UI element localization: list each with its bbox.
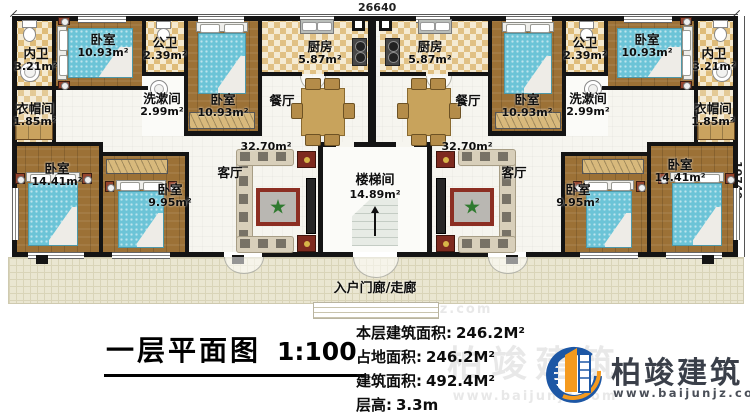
chair	[411, 78, 427, 90]
company-logo: 柏竣建筑 www.baijunjz.com	[541, 340, 746, 412]
stat-land-area: 占地面积:246.2M²	[356, 345, 525, 369]
corner-table	[297, 151, 316, 168]
sofa	[236, 236, 294, 253]
kitchen-sink-symbol	[300, 19, 334, 34]
dimension-width: 26640	[355, 1, 399, 14]
room-label-bath-public-right: 公卫 2.39m²	[560, 36, 610, 62]
room-label-dining-right: 餐厅	[448, 94, 488, 108]
window	[78, 16, 126, 23]
wall	[562, 72, 608, 76]
room-label-bedroom1-right: 卧室 10.93m²	[604, 33, 690, 59]
wall-stairwell-left	[318, 142, 323, 257]
wall	[142, 72, 188, 76]
wall	[324, 72, 370, 76]
wall	[647, 142, 738, 146]
wall	[12, 142, 103, 146]
stairs-direction-arrow	[374, 208, 376, 236]
sofa	[458, 236, 516, 253]
dimension-line-top	[12, 14, 738, 15]
wall	[262, 72, 302, 76]
room-label-bedroom2-left: 卧室 10.93m²	[186, 93, 260, 119]
room-label-bath-private-right: 内卫 3.21m²	[690, 47, 738, 73]
room-label-bath-public-left: 公卫 2.39m²	[140, 36, 190, 62]
room-label-cloak-right: 衣帽间 1.85m²	[686, 102, 740, 128]
bed-symbol	[196, 22, 248, 96]
window	[12, 188, 19, 240]
room-label-bath-private-left: 内卫 3.21m²	[12, 47, 60, 73]
wall	[561, 152, 651, 156]
room-label-kitchen-left: 厨房 5.87m²	[280, 40, 360, 66]
corner-table	[436, 151, 455, 168]
toilet-symbol	[22, 20, 37, 42]
room-label-bedroom1-left: 卧室 10.93m²	[60, 33, 146, 59]
room-label-bedroom4-right: 卧室 9.95m²	[543, 183, 613, 209]
nightstand	[58, 81, 70, 89]
wall	[184, 131, 262, 136]
floorplan-sheet: 26640 10740 柏竣建筑 www.baijunjz.com 柏竣建筑 w…	[0, 0, 750, 419]
porch-post	[36, 255, 48, 264]
drawing-title-row: 一层平面图 1:100	[104, 329, 365, 377]
room-label-bedroom2-right: 卧室 10.93m²	[490, 93, 564, 119]
drawing-title: 一层平面图	[106, 329, 261, 369]
stat-floor-height: 层高:3.3m	[356, 393, 525, 417]
entry-steps	[313, 302, 439, 319]
chair	[411, 134, 427, 146]
entry-column	[379, 18, 392, 31]
stats-block: 本层建筑面积:246.2M² 占地面积:246.2M² 建筑面积:492.4M²…	[356, 321, 525, 417]
toilet-symbol	[713, 20, 728, 42]
stat-building-area: 建筑面积:492.4M²	[356, 369, 525, 393]
company-website: www.baijunjz.com	[613, 386, 750, 400]
corner-table	[297, 235, 316, 252]
bed-symbol	[502, 22, 554, 96]
wall	[694, 86, 738, 90]
room-label-wash-right: 洗漱间 2.99m²	[556, 92, 620, 118]
room-area-living-right: 32.70m²	[441, 141, 493, 153]
room-label-living-right: 客厅	[494, 166, 534, 180]
nightstand	[105, 181, 114, 192]
chair	[397, 103, 409, 119]
room-label-stairwell: 楼梯间 14.89m²	[335, 174, 415, 201]
nightstand	[725, 173, 735, 184]
wall-stairwell-right	[427, 142, 432, 257]
dining-table	[301, 88, 345, 136]
room-label-bedroom4-left: 卧室 9.95m²	[135, 183, 205, 209]
wall	[448, 72, 488, 76]
wall	[99, 152, 189, 156]
window	[112, 252, 170, 259]
wall	[99, 142, 103, 257]
porch-post	[702, 255, 714, 264]
room-label-wash-left: 洗漱间 2.99m²	[130, 92, 194, 118]
room-label-porch: 入户门廊/走廊	[290, 282, 460, 297]
room-label-kitchen-right: 厨房 5.87m²	[390, 40, 470, 66]
window	[733, 188, 740, 240]
chair	[324, 78, 340, 90]
room-area-living-left: 32.70m²	[240, 141, 292, 153]
dimension-line-right	[744, 16, 745, 257]
entry-column	[352, 18, 365, 31]
window	[580, 252, 638, 259]
tv-cabinet	[306, 178, 316, 234]
room-label-living-left: 客厅	[210, 166, 250, 180]
nightstand	[680, 17, 692, 25]
wall	[488, 131, 566, 136]
nightstand	[58, 17, 70, 25]
stat-floor-area: 本层建筑面积:246.2M²	[356, 321, 525, 345]
nightstand	[680, 81, 692, 89]
window	[624, 16, 672, 23]
wall-center	[368, 16, 376, 142]
wall	[380, 72, 426, 76]
room-label-bedroom3-left: 卧室 14.41m²	[20, 162, 94, 188]
kitchen-sink-symbol	[418, 19, 452, 34]
company-logo-icon	[541, 340, 605, 404]
tv-cabinet	[436, 178, 446, 234]
wardrobe	[582, 159, 644, 174]
chair	[324, 134, 340, 146]
corner-table	[436, 235, 455, 252]
drawing-scale: 1:100	[277, 337, 357, 366]
chair	[430, 78, 446, 90]
room-label-bedroom3-right: 卧室 14.41m²	[643, 158, 717, 184]
wardrobe	[106, 159, 168, 174]
room-label-cloak-left: 衣帽间 1.85m²	[8, 102, 62, 128]
chair	[305, 78, 321, 90]
chair	[343, 103, 355, 119]
dining-table	[407, 88, 451, 136]
room-label-dining-left: 餐厅	[262, 94, 302, 108]
chair	[305, 134, 321, 146]
wall	[12, 86, 56, 90]
